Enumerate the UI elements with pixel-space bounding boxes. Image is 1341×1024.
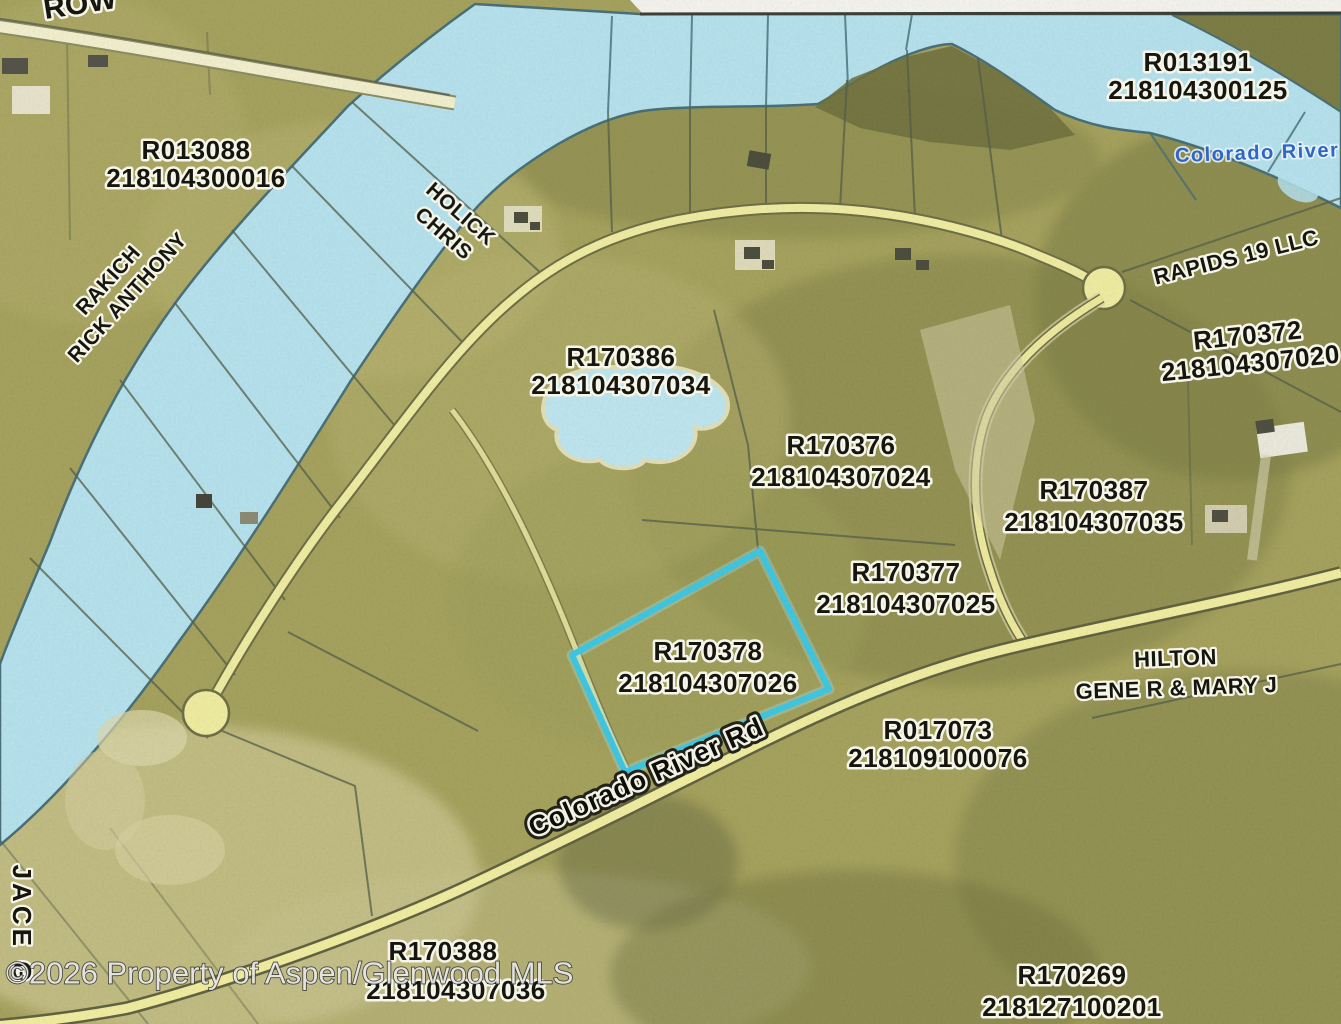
svg-text:218127100201: 218127100201 (982, 992, 1162, 1022)
svg-text:218104307025: 218104307025 (816, 589, 996, 619)
svg-text:218104307034: 218104307034 (531, 370, 711, 400)
svg-text:R170378: R170378 (653, 636, 762, 666)
svg-text:R170387: R170387 (1039, 475, 1148, 505)
svg-text:R017073: R017073 (883, 715, 992, 745)
svg-text:HILTON: HILTON (1134, 644, 1218, 672)
svg-text:218104307024: 218104307024 (751, 462, 931, 492)
svg-text:R170376: R170376 (786, 430, 895, 460)
parcel-map-screenshot: ROW R013088 218104300016 R013191 2181043… (0, 0, 1341, 1024)
mls-copyright-watermark: ©2026 Property of Aspen/Glenwood MLS (6, 956, 573, 991)
parcel-map-canvas: ROW R013088 218104300016 R013191 2181043… (0, 0, 1341, 1024)
svg-text:R170269: R170269 (1017, 960, 1126, 990)
svg-text:218104300125: 218104300125 (1108, 75, 1288, 105)
svg-text:218104307026: 218104307026 (618, 668, 798, 698)
svg-text:218109100076: 218109100076 (848, 743, 1028, 773)
svg-text:218104300016: 218104300016 (106, 163, 286, 193)
svg-text:R170386: R170386 (566, 342, 675, 372)
svg-text:218104307035: 218104307035 (1004, 507, 1184, 537)
svg-text:R013088: R013088 (141, 135, 250, 165)
svg-text:R170377: R170377 (851, 557, 960, 587)
svg-text:R013191: R013191 (1143, 47, 1252, 77)
